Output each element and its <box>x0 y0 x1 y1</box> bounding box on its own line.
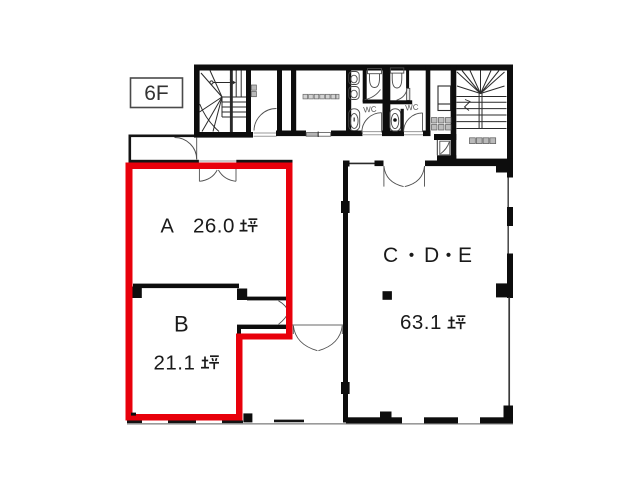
svg-text:E: E <box>458 244 472 267</box>
svg-text:21.1: 21.1 <box>154 352 196 375</box>
svg-text:63.1: 63.1 <box>400 311 442 334</box>
svg-text:WC: WC <box>405 103 419 113</box>
svg-text:6F: 6F <box>144 82 169 105</box>
svg-text:WC: WC <box>363 105 377 115</box>
svg-text:B: B <box>174 312 189 337</box>
svg-text:D: D <box>424 244 439 267</box>
svg-text:26.0: 26.0 <box>193 215 235 238</box>
svg-text:A: A <box>161 216 175 238</box>
svg-text:C: C <box>383 244 398 267</box>
